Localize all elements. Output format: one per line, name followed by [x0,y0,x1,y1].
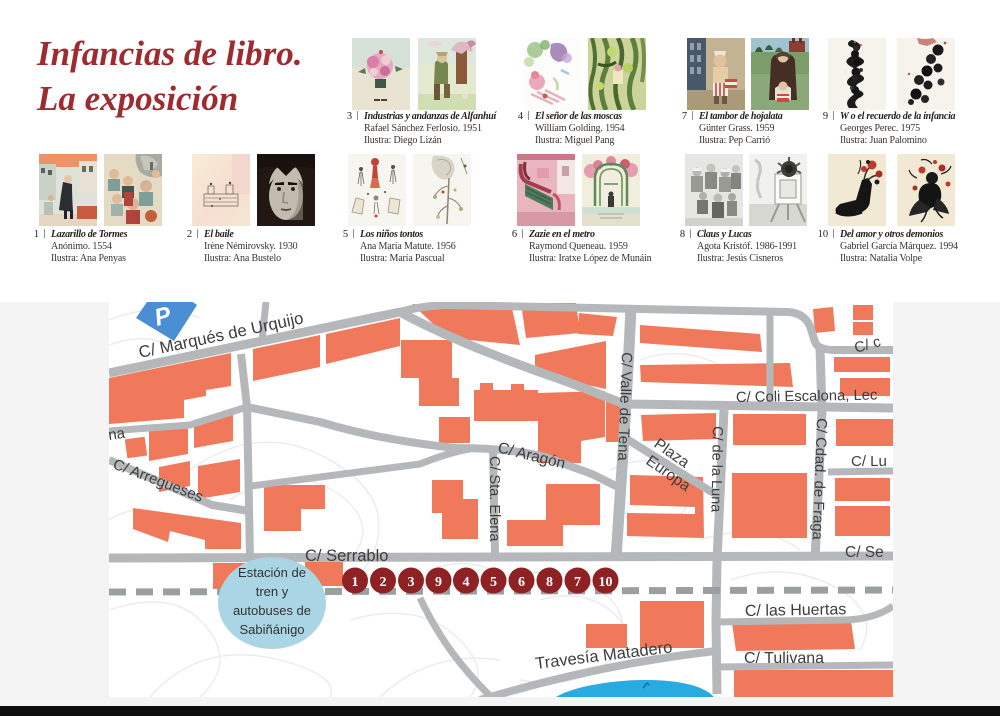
svg-text:C/ Coli Escalona, Lec: C/ Coli Escalona, Lec [736,388,878,406]
svg-text:Estación de: Estación de [238,565,306,580]
svg-text:C/ Se: C/ Se [845,544,884,561]
svg-text:7: 7 [574,575,581,590]
svg-text:10: 10 [599,575,613,590]
svg-text:C/ de la Luna: C/ de la Luna [707,426,725,513]
svg-text:C/ Sta. Elena: C/ Sta. Elena [486,456,502,542]
svg-text:C/ Tulivana: C/ Tulivana [744,650,824,667]
svg-text:Sabiñánigo: Sabiñánigo [239,622,304,637]
svg-text:tren y: tren y [256,584,289,599]
svg-text:C/ Lu: C/ Lu [851,453,887,470]
svg-text:8: 8 [546,575,553,590]
svg-text:2: 2 [380,575,387,590]
svg-text:6: 6 [518,575,525,590]
svg-text:C/ Serrablo: C/ Serrablo [305,547,388,565]
svg-text:1: 1 [352,575,359,590]
svg-text:4: 4 [463,575,470,590]
svg-text:5: 5 [490,575,497,590]
svg-text:3: 3 [408,575,415,590]
svg-text:na: na [109,425,127,444]
svg-text:autobuses de: autobuses de [233,603,311,618]
svg-text:C/ las Huertas: C/ las Huertas [745,601,847,620]
svg-text:9: 9 [435,575,442,590]
